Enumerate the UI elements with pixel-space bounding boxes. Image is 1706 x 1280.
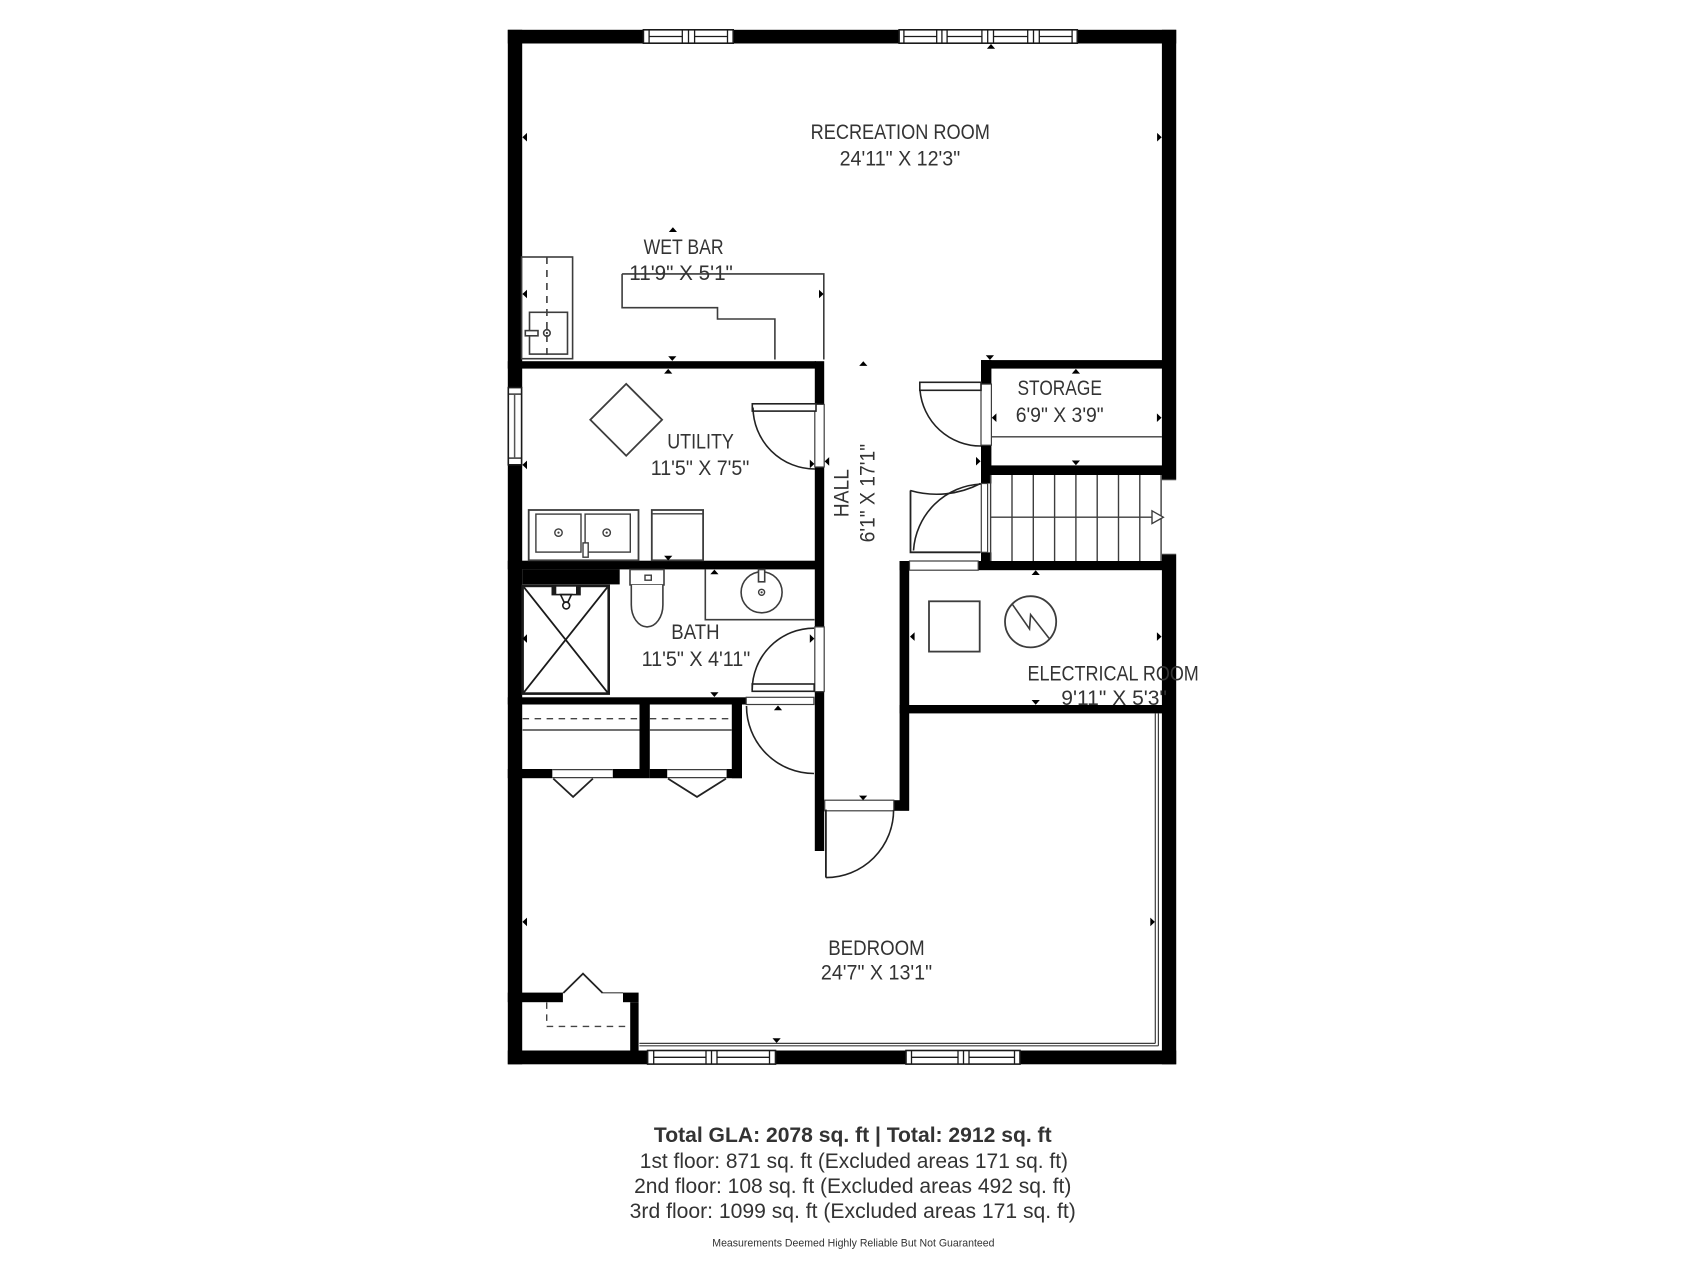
svg-text:BATH: BATH	[671, 621, 719, 644]
svg-text:Measurements Deemed Highly Rel: Measurements Deemed Highly Reliable But …	[712, 1237, 994, 1249]
svg-text:ELECTRICAL ROOM: ELECTRICAL ROOM	[1028, 662, 1199, 685]
svg-text:2nd floor: 108 sq. ft (Exclude: 2nd floor: 108 sq. ft (Excluded areas 49…	[634, 1175, 1071, 1198]
svg-text:24'11" X 12'3": 24'11" X 12'3"	[840, 148, 961, 171]
svg-text:24'7" X 13'1": 24'7" X 13'1"	[821, 962, 932, 985]
svg-text:HALL: HALL	[831, 469, 854, 517]
svg-text:WET BAR: WET BAR	[644, 236, 724, 259]
svg-text:6'9" X 3'9": 6'9" X 3'9"	[1016, 404, 1104, 427]
svg-text:6'1" X 17'1": 6'1" X 17'1"	[857, 444, 880, 543]
svg-text:Total GLA: 2078 sq. ft | Total: Total GLA: 2078 sq. ft | Total: 2912 sq.…	[654, 1124, 1052, 1147]
svg-text:11'5" X 7'5": 11'5" X 7'5"	[651, 457, 750, 480]
svg-text:BEDROOM: BEDROOM	[828, 937, 925, 960]
svg-text:11'5" X 4'11": 11'5" X 4'11"	[642, 648, 751, 671]
svg-text:STORAGE: STORAGE	[1018, 377, 1102, 400]
svg-text:9'11" X 5'3": 9'11" X 5'3"	[1061, 687, 1167, 710]
svg-text:3rd floor: 1099 sq. ft (Exclud: 3rd floor: 1099 sq. ft (Excluded areas 1…	[630, 1200, 1076, 1223]
svg-text:11'9" X 5'1": 11'9" X 5'1"	[629, 262, 733, 285]
svg-text:RECREATION ROOM: RECREATION ROOM	[811, 121, 990, 144]
svg-text:UTILITY: UTILITY	[667, 431, 734, 454]
svg-text:1st floor: 871 sq. ft (Exclude: 1st floor: 871 sq. ft (Excluded areas 17…	[640, 1150, 1068, 1173]
